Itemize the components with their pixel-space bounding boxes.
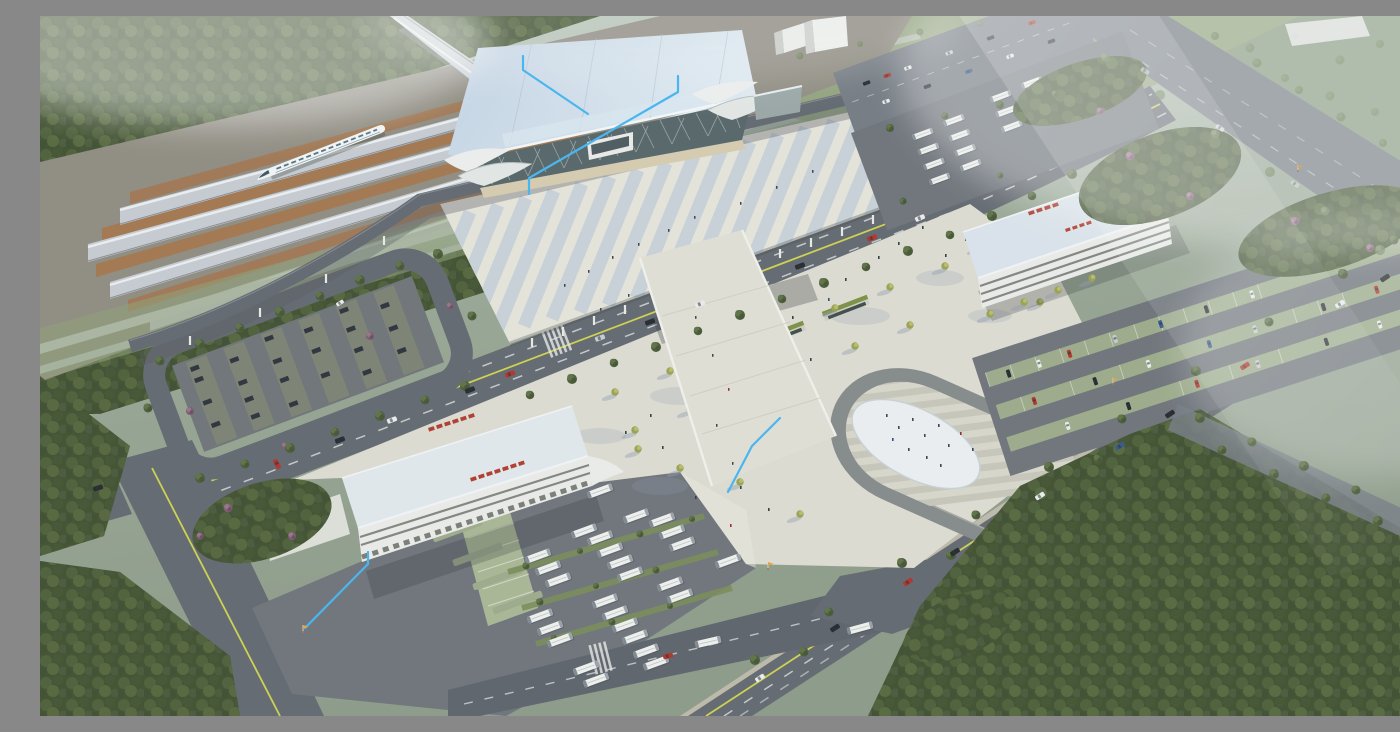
render-canvas bbox=[40, 16, 1400, 716]
color-cast bbox=[40, 16, 1400, 716]
aerial-render: Aerial rendering of a high-speed railway… bbox=[40, 16, 1400, 716]
